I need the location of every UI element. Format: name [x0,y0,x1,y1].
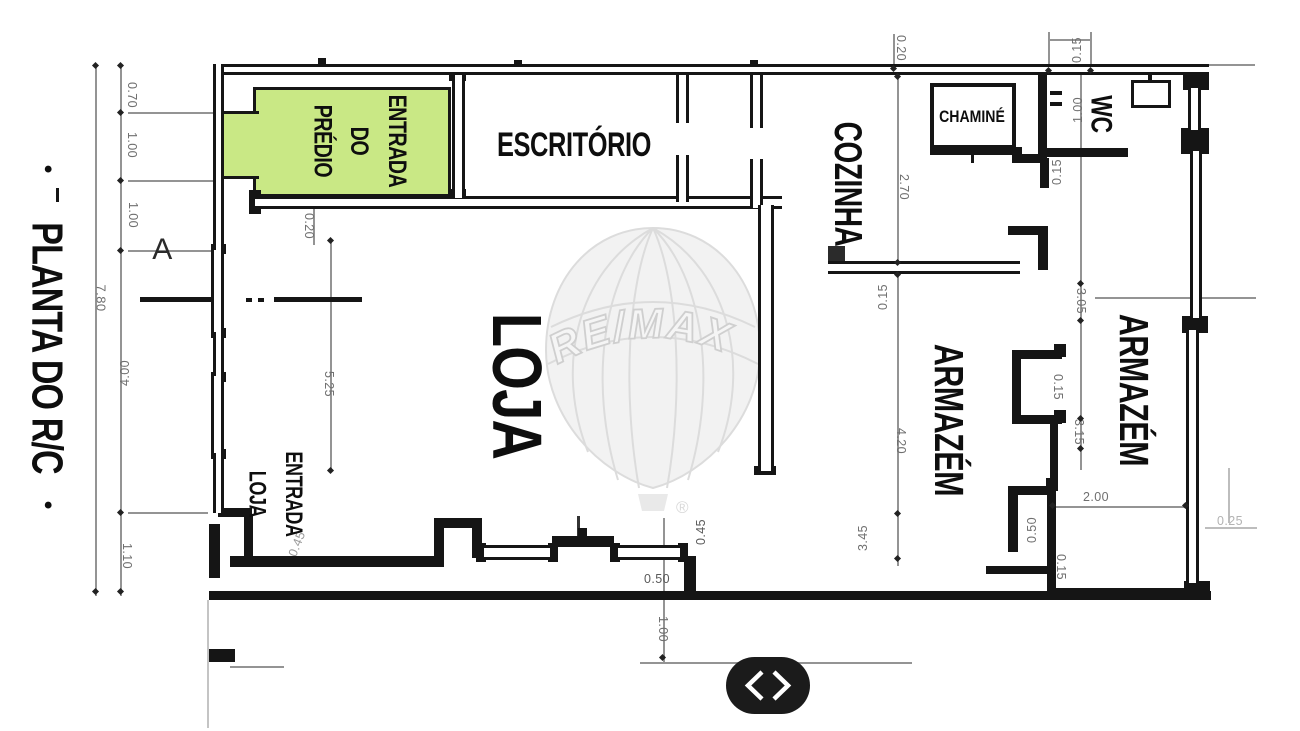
dimension-line [128,180,214,182]
dimension-tick [1077,445,1084,452]
room-label-cozinha: COZINHA [825,122,869,247]
wall-segment [258,298,264,302]
wall-segment [1050,102,1062,106]
window-wall [1188,88,1201,130]
dim-label: 3.15 [1072,419,1086,445]
dimension-tick [92,588,99,595]
dim-label: 0.15 [1054,554,1068,580]
wall-segment [1008,486,1018,552]
window-wall [211,250,224,332]
dimension-line [120,66,122,596]
dim-label: 1.00 [126,202,140,228]
dimension-tick [117,509,124,516]
chevron-left-icon[interactable] [748,672,762,699]
wall-segment [209,649,235,662]
dimension-line [1052,506,1188,508]
floor-plan: RE/MAX ® PLANTA DO R/C • • A ENTRADA DO … [0,0,1300,731]
dimension-tick [117,109,124,116]
dimension-tick [117,588,124,595]
room-label-chamine: CHAMINÉ [939,109,1005,128]
double-wall [828,261,1020,274]
wall-segment [1040,158,1049,188]
dim-label: 0.20 [894,35,908,61]
wall-segment [209,591,1211,600]
wall-segment [209,524,220,578]
window-wall [676,155,689,202]
wall-segment [1054,344,1066,357]
dim-label: 0.70 [125,82,139,108]
entrada-loja-line2: LOJA [240,451,276,536]
wall-segment [1012,350,1021,424]
double-wall [618,545,680,560]
room-label-armazem-center: ARMAZÉM [925,344,971,496]
image-nav-pill[interactable] [726,657,810,714]
dimension-line [128,512,208,514]
wall-segment [274,297,362,302]
window-wall [211,376,224,453]
double-wall [213,64,1209,75]
window-wall [1190,151,1202,318]
wall-segment [56,188,59,202]
wall-segment [930,147,1022,155]
entrada-predio-line2: DO [341,95,378,188]
dimension-tick [894,510,901,517]
dimension-tick [894,555,901,562]
wall-segment [140,297,212,302]
title-bullet-bottom: • [44,492,52,520]
dim-label: 7.80 [94,285,109,312]
dimension-line [1095,297,1256,299]
wall-segment [971,150,974,163]
dimension-tick [92,62,99,69]
window-wall [750,75,763,128]
dimension-line [230,666,284,668]
wall-segment [246,298,252,302]
wall-segment [684,556,696,596]
entrada-predio-line1: ENTRADA [379,95,416,188]
dim-label: 2.70 [897,174,911,200]
wall-segment [230,556,442,567]
double-wall [484,545,550,560]
dimension-line [128,112,214,114]
window-wall [1186,330,1199,583]
dim-label: 1.00 [656,616,670,642]
double-wall [255,196,782,209]
registered-mark: ® [676,498,689,517]
dimension-line [1080,70,1082,470]
room-label-loja: LOJA [477,313,557,459]
dimension-tick [327,467,334,474]
wall-segment [552,536,614,547]
dim-label: 5.25 [322,371,336,397]
wc-fixture [1131,80,1171,108]
plan-title: PLANTA DO R/C [21,222,71,473]
dim-label: 0.45 [694,519,708,545]
dimension-line [897,76,899,566]
wall-segment [1038,148,1128,157]
wall-segment [578,528,587,537]
wall-segment [1038,226,1048,270]
dim-label: 0.15 [1051,374,1065,400]
remax-balloon-icon: RE/MAX ® [518,222,788,522]
dim-label: 1.10 [120,543,134,569]
dimension-line [1207,64,1255,66]
wall-segment [1184,581,1210,596]
wall-segment [1050,91,1062,95]
wall-segment [986,566,1048,574]
room-label-escritorio: ESCRITÓRIO [497,125,651,165]
dimension-line [207,600,209,728]
room-label-armazem-right: ARMAZÉM [1110,314,1156,466]
window-wall [676,75,689,123]
dim-label: 0.15 [1070,37,1084,63]
room-label-entrada-predio: ENTRADA DO PRÉDIO [304,95,416,188]
dimension-line [330,240,332,472]
wall-segment [1054,410,1066,423]
dimension-tick [1077,317,1084,324]
section-marker-a: A [152,233,172,267]
wall-segment [1050,423,1058,483]
dimension-tick [117,247,124,254]
entrada-loja-line1: ENTRADA [276,451,312,536]
dimension-line [95,66,97,596]
wall-segment [1038,74,1047,154]
dim-label: 1.00 [125,132,139,158]
room-label-entrada-loja: ENTRADA LOJA [240,451,313,536]
dim-label: 4.20 [894,428,908,454]
balloon-basket [638,494,668,511]
title-bullet-top: • [44,156,52,184]
dim-label: 0.15 [876,284,890,310]
window-wall [452,75,465,198]
dim-label: 3.05 [1074,288,1088,314]
dim-label: 1.00 [1071,97,1085,123]
dim-label: 2.00 [1083,490,1109,504]
window-wall [758,205,774,471]
dim-label: 0.50 [1025,517,1039,543]
dimension-tick [117,177,124,184]
dim-label: 0.15 [1050,159,1064,185]
dimension-tick [1077,280,1084,287]
entrada-predio-line3: PRÉDIO [304,95,341,188]
dim-label: 0.50 [644,572,670,586]
dim-label: 0.20 [302,213,316,239]
window-wall [750,159,763,208]
chevron-right-icon[interactable] [774,672,788,699]
dim-label: 4.00 [118,360,132,386]
dimension-tick [117,62,124,69]
dimension-tick [327,237,334,244]
room-label-wc: WC [1084,95,1118,132]
dim-label: 3.45 [856,525,870,551]
dim-label: 0.25 [1217,514,1243,528]
